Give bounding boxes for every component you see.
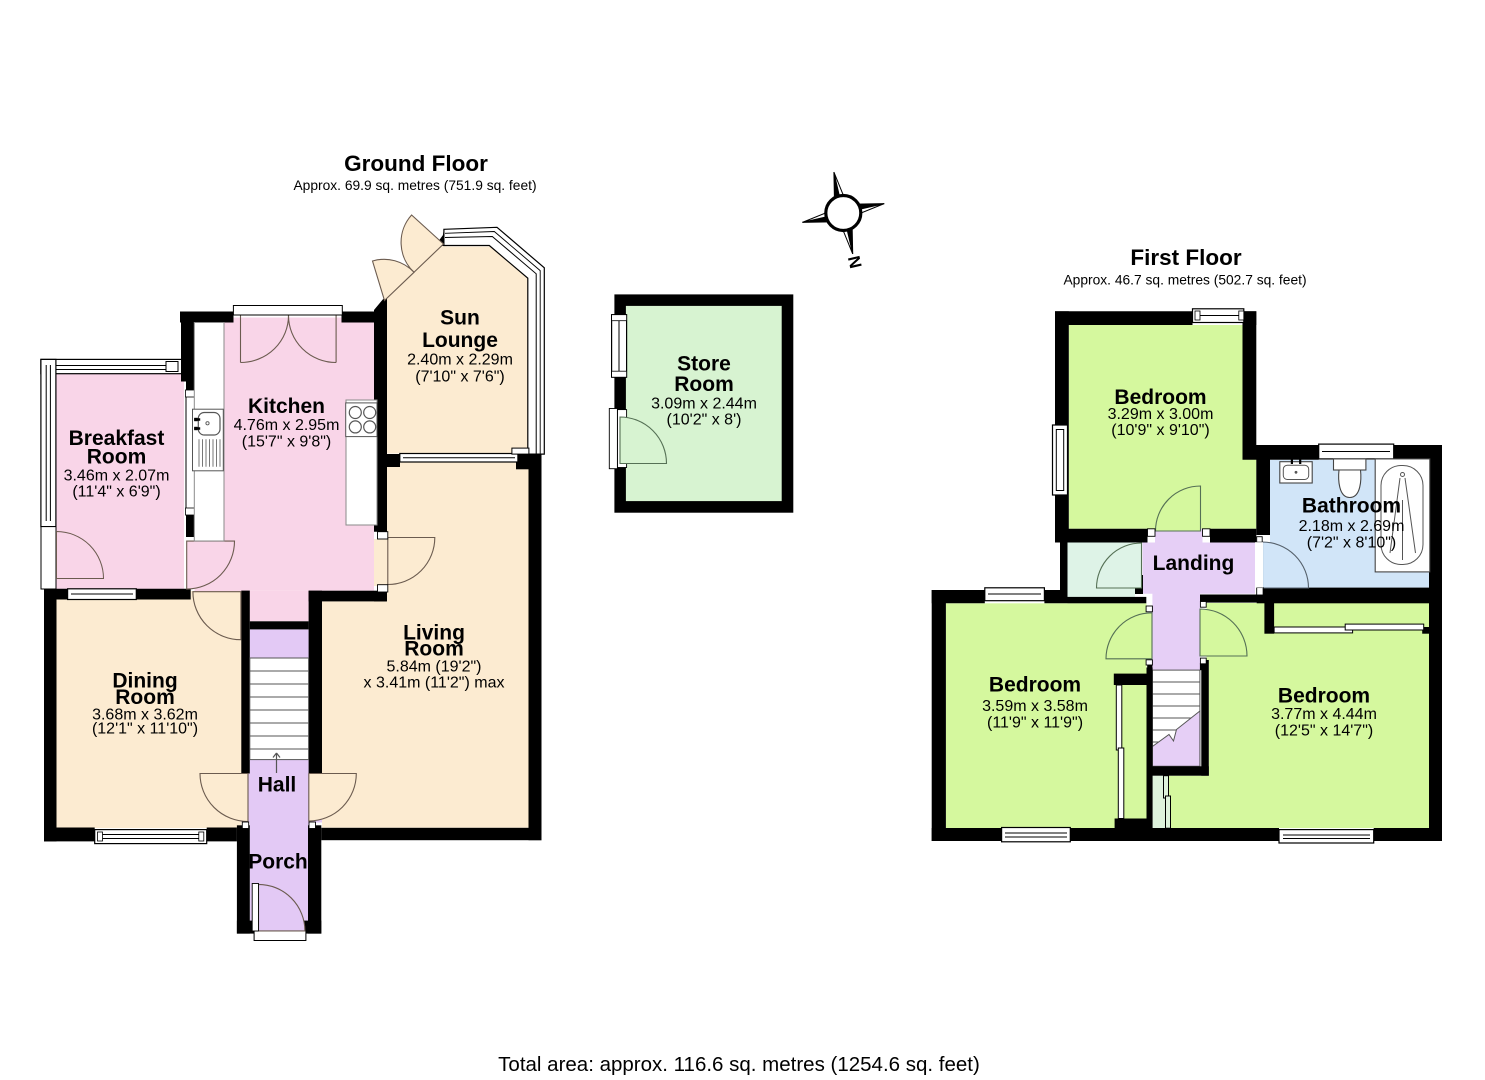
- svg-text:Approx. 46.7 sq. metres (502.7: Approx. 46.7 sq. metres (502.7 sq. feet): [1063, 273, 1306, 288]
- svg-text:(10'2" x 8'): (10'2" x 8'): [667, 412, 742, 429]
- svg-text:5.84m (19'2"): 5.84m (19'2"): [387, 659, 482, 676]
- svg-text:Porch: Porch: [248, 851, 308, 874]
- svg-text:3.29m x 3.00m: 3.29m x 3.00m: [1108, 406, 1214, 423]
- svg-text:(12'1" x 11'10"): (12'1" x 11'10"): [92, 721, 198, 738]
- svg-text:3.77m x 4.44m: 3.77m x 4.44m: [1271, 706, 1377, 723]
- svg-text:(7'2" x 8'10"): (7'2" x 8'10"): [1307, 535, 1397, 552]
- svg-text:Bathroom: Bathroom: [1302, 495, 1401, 518]
- svg-text:Approx. 69.9 sq. metres (751.9: Approx. 69.9 sq. metres (751.9 sq. feet): [293, 178, 536, 193]
- svg-text:(12'5" x 14'7"): (12'5" x 14'7"): [1275, 723, 1373, 740]
- svg-text:(11'4" x 6'9"): (11'4" x 6'9"): [72, 484, 160, 501]
- svg-text:(10'9" x 9'10"): (10'9" x 9'10"): [1111, 422, 1209, 439]
- svg-text:Total area: approx. 116.6 sq.: Total area: approx. 116.6 sq. metres (12…: [498, 1053, 980, 1076]
- svg-text:Hall: Hall: [258, 774, 297, 797]
- svg-text:Room: Room: [674, 373, 734, 396]
- svg-text:Sun: Sun: [440, 307, 480, 330]
- svg-text:(11'9" x 11'9"): (11'9" x 11'9"): [987, 715, 1083, 732]
- svg-text:3.46m x 2.07m: 3.46m x 2.07m: [64, 468, 170, 485]
- svg-text:First Floor: First Floor: [1130, 245, 1241, 270]
- svg-text:Room: Room: [404, 638, 464, 661]
- svg-text:3.09m x 2.44m: 3.09m x 2.44m: [651, 396, 757, 413]
- svg-text:Bedroom: Bedroom: [989, 674, 1081, 697]
- svg-text:Landing: Landing: [1153, 552, 1235, 575]
- svg-text:2.40m x 2.29m: 2.40m x 2.29m: [407, 352, 513, 369]
- svg-text:(7'10" x 7'6"): (7'10" x 7'6"): [415, 369, 505, 386]
- svg-text:4.76m x 2.95m: 4.76m x 2.95m: [234, 417, 340, 434]
- svg-text:Bedroom: Bedroom: [1278, 685, 1370, 708]
- svg-text:Kitchen: Kitchen: [248, 395, 325, 418]
- svg-text:x 3.41m (11'2") max: x 3.41m (11'2") max: [364, 675, 505, 692]
- svg-text:(15'7" x 9'8"): (15'7" x 9'8"): [242, 434, 332, 451]
- svg-text:Ground Floor: Ground Floor: [344, 151, 488, 176]
- svg-text:2.18m x 2.69m: 2.18m x 2.69m: [1299, 518, 1405, 535]
- svg-text:Room: Room: [87, 446, 147, 469]
- svg-text:3.59m x 3.58m: 3.59m x 3.58m: [982, 698, 1088, 715]
- svg-text:Lounge: Lounge: [422, 329, 498, 352]
